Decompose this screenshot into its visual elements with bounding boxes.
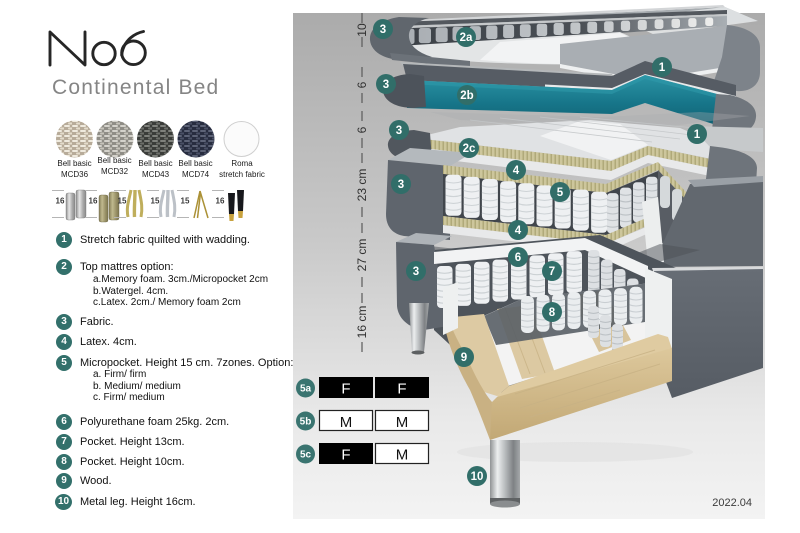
svg-text:5b: 5b	[300, 417, 312, 428]
svg-text:7: 7	[549, 266, 555, 278]
svg-text:F: F	[341, 381, 350, 398]
svg-text:6: 6	[515, 252, 521, 264]
svg-text:8: 8	[549, 307, 556, 319]
svg-text:2c: 2c	[463, 143, 476, 155]
svg-text:2a: 2a	[460, 32, 473, 44]
svg-text:6: 6	[355, 81, 369, 88]
svg-text:4: 4	[513, 165, 520, 177]
svg-text:1: 1	[694, 129, 701, 141]
svg-text:2022.04: 2022.04	[712, 497, 752, 509]
svg-text:9: 9	[461, 352, 467, 364]
svg-text:M: M	[396, 414, 409, 431]
svg-text:27 cm: 27 cm	[355, 239, 369, 272]
svg-text:M: M	[396, 447, 409, 464]
svg-text:16 cm: 16 cm	[355, 306, 369, 339]
svg-text:23 cm: 23 cm	[355, 169, 369, 202]
svg-text:10: 10	[355, 23, 369, 37]
svg-text:5: 5	[557, 187, 564, 199]
svg-text:F: F	[341, 447, 350, 464]
svg-text:3: 3	[383, 79, 389, 91]
svg-text:5c: 5c	[300, 450, 312, 461]
svg-text:6: 6	[355, 126, 369, 133]
svg-text:3: 3	[396, 125, 402, 137]
svg-text:1: 1	[659, 62, 666, 74]
svg-text:5a: 5a	[300, 384, 312, 395]
svg-text:3: 3	[380, 24, 386, 36]
svg-text:M: M	[340, 414, 353, 431]
svg-text:3: 3	[398, 179, 404, 191]
svg-text:3: 3	[413, 266, 419, 278]
svg-text:4: 4	[515, 225, 522, 237]
svg-text:F: F	[397, 381, 406, 398]
svg-text:10: 10	[471, 471, 484, 483]
svg-text:2b: 2b	[460, 90, 473, 102]
